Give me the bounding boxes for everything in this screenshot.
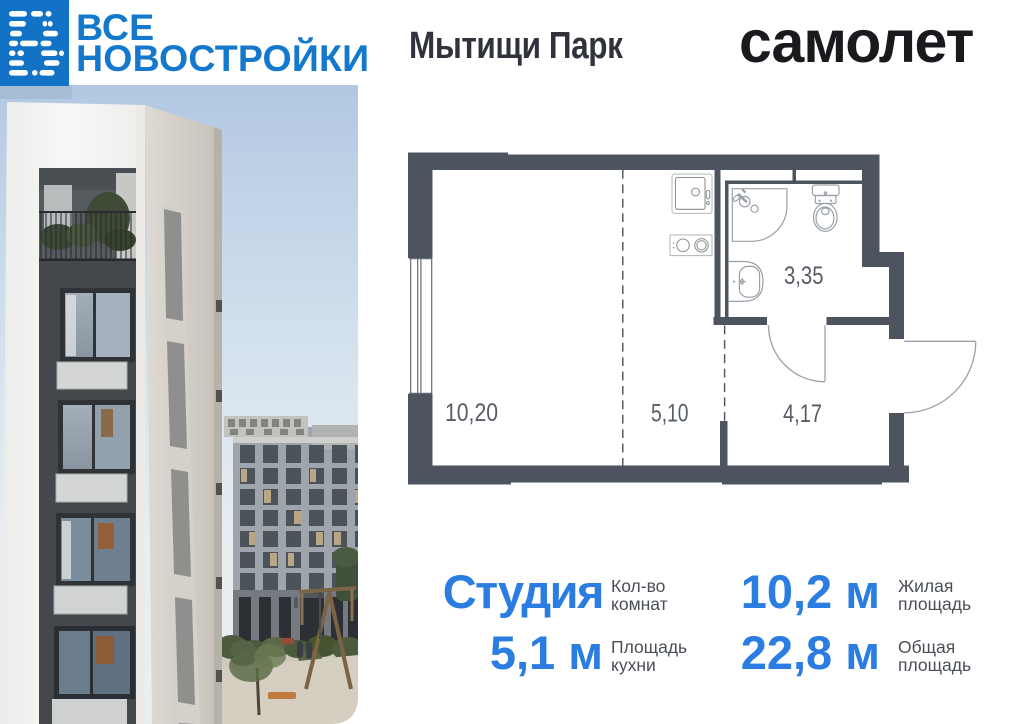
svg-text:5,10: 5,10	[651, 400, 689, 428]
svg-text:4,17: 4,17	[783, 400, 822, 428]
svg-text:10,20: 10,20	[445, 399, 498, 427]
svg-text:3,35: 3,35	[784, 262, 824, 290]
